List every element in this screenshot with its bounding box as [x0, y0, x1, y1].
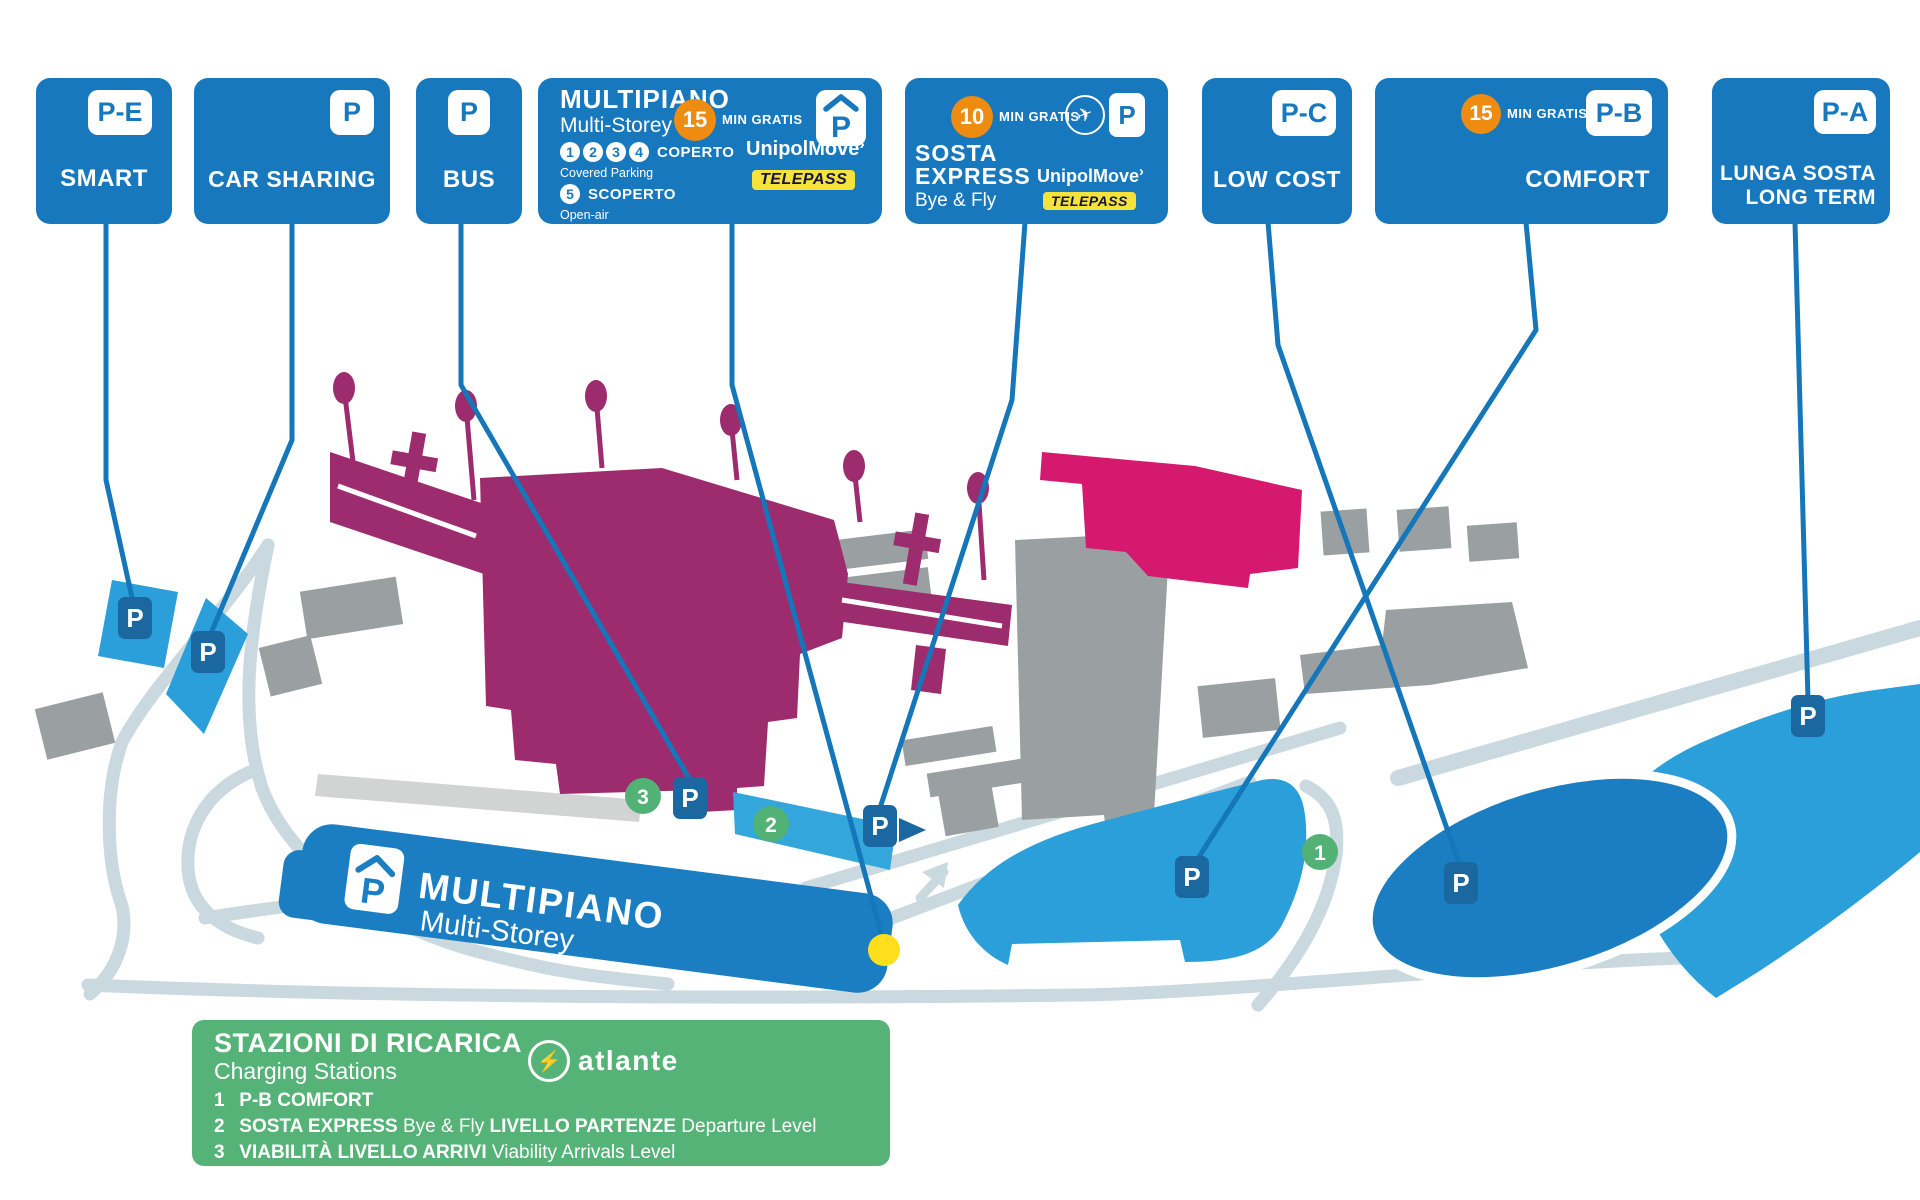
parking-marker-low-cost[interactable]: P — [1444, 862, 1478, 904]
level-3-icon: 3 — [606, 142, 626, 162]
level-1-icon: 1 — [560, 142, 580, 162]
parking-marker-car-sharing[interactable]: P — [191, 631, 225, 673]
svg-text:P: P — [681, 783, 698, 813]
atlante-brand-name: atlante — [578, 1045, 679, 1077]
card-smart[interactable]: P-E SMART — [36, 78, 172, 224]
marker-flag — [899, 818, 926, 842]
card-car-sharing[interactable]: P CAR SHARING — [194, 78, 390, 224]
p-e-badge: P-E — [88, 90, 152, 135]
unipolmove-logo: UnipolMove› — [746, 138, 865, 161]
p-b-badge: P-B — [1586, 90, 1652, 136]
open-sub: Open-air — [560, 208, 609, 222]
p-badge: P — [1109, 93, 1145, 137]
free-minutes-badge: 10 — [951, 96, 993, 138]
charging-item-1: 1 P-B COMFORT — [214, 1088, 817, 1114]
svg-text:P: P — [1452, 868, 1469, 898]
low-cost-label: LOW COST — [1202, 166, 1352, 193]
card-bus[interactable]: P BUS — [416, 78, 522, 224]
covered-label: COPERTO — [657, 144, 734, 161]
charging-stations-box: STAZIONI DI RICARICA Charging Stations ⚡… — [192, 1020, 890, 1166]
charging-subtitle: Charging Stations — [214, 1058, 397, 1085]
svg-text:P: P — [126, 603, 143, 633]
svg-text:P: P — [1799, 701, 1816, 731]
departures-plane-icon: ✈ — [1065, 95, 1105, 135]
card-multipiano[interactable]: MULTIPIANO Multi-Storey 1 2 3 4 COPERTO … — [538, 78, 882, 224]
entrance-dot — [868, 934, 900, 966]
telepass-logo: TELEPASS — [1043, 192, 1136, 210]
card-sosta-express[interactable]: 10 MIN GRATIS ✈ P SOSTA EXPRESS Bye & Fl… — [905, 78, 1168, 224]
covered-sub: Covered Parking — [560, 166, 653, 180]
telepass-logo: TELEPASS — [752, 170, 855, 190]
p-badge: P — [330, 90, 374, 135]
free-minutes-badge: 15 — [1461, 94, 1501, 134]
multipiano-subtitle: Multi-Storey — [560, 114, 672, 138]
covered-levels-row: 1 2 3 4 COPERTO — [560, 142, 734, 162]
svg-text:2: 2 — [765, 814, 777, 837]
open-label: SCOPERTO — [588, 186, 676, 203]
svg-text:P: P — [199, 637, 216, 667]
free-minutes-badge: 15 — [674, 99, 716, 141]
long-term-label-it: LUNGA SOSTA — [1720, 162, 1876, 186]
card-comfort[interactable]: 15 MIN GRATIS P-B COMFORT — [1375, 78, 1668, 224]
p-badge: P — [448, 90, 490, 135]
parking-marker-long-term[interactable]: P — [1791, 695, 1825, 737]
svg-text:1: 1 — [1314, 842, 1326, 865]
p-c-badge: P-C — [1272, 90, 1336, 136]
unipolmove-arrow-icon: › — [1139, 164, 1144, 180]
car-sharing-label: CAR SHARING — [194, 166, 390, 193]
svg-text:P: P — [871, 811, 888, 841]
min-gratis-label: MIN GRATIS — [1507, 106, 1588, 121]
p-a-badge: P-A — [1814, 90, 1876, 134]
bus-label: BUS — [416, 166, 522, 194]
charging-title: STAZIONI DI RICARICA — [214, 1028, 522, 1059]
smart-label: SMART — [36, 165, 172, 193]
svg-text:3: 3 — [637, 786, 649, 809]
parking-marker-bus[interactable]: P — [673, 777, 707, 819]
parking-marker-comfort[interactable]: P — [1175, 856, 1209, 898]
charging-station-2[interactable]: 2 — [753, 806, 789, 842]
unipolmove-arrow-icon: › — [859, 136, 864, 153]
charging-station-3[interactable]: 3 — [625, 778, 661, 814]
atlante-bolt-icon: ⚡ — [528, 1040, 570, 1082]
level-4-icon: 4 — [629, 142, 649, 162]
terminal-main — [480, 468, 848, 812]
charging-item-2: 2 SOSTA EXPRESS Bye & Fly LIVELLO PARTEN… — [214, 1114, 817, 1140]
unipolmove-logo: UnipolMove› — [1037, 166, 1144, 187]
comfort-label: COMFORT — [1525, 166, 1650, 194]
atlante-logo: ⚡ atlante — [528, 1040, 679, 1082]
sosta-title-2: EXPRESS — [915, 163, 1031, 190]
parking-marker-smart[interactable]: P — [118, 597, 152, 639]
level-2-icon: 2 — [583, 142, 603, 162]
min-gratis-label: MIN GRATIS — [722, 112, 803, 127]
card-long-term[interactable]: P-A LUNGA SOSTA LONG TERM — [1712, 78, 1890, 224]
long-term-label-en: LONG TERM — [1746, 186, 1877, 210]
sosta-subtitle: Bye & Fly — [915, 190, 996, 212]
airport-parking-map: P MULTIPIANO Multi-Storey P P P P — [0, 0, 1920, 1200]
parking-marker-sosta-express[interactable]: P — [863, 805, 897, 847]
card-low-cost[interactable]: P-C LOW COST — [1202, 78, 1352, 224]
charging-station-1[interactable]: 1 — [1302, 834, 1338, 870]
level-5-icon: 5 — [560, 184, 580, 204]
svg-text:P: P — [1183, 862, 1200, 892]
open-level-row: 5 SCOPERTO — [560, 184, 676, 204]
charging-item-3: 3 VIABILITÀ LIVELLO ARRIVI Viability Arr… — [214, 1140, 817, 1166]
